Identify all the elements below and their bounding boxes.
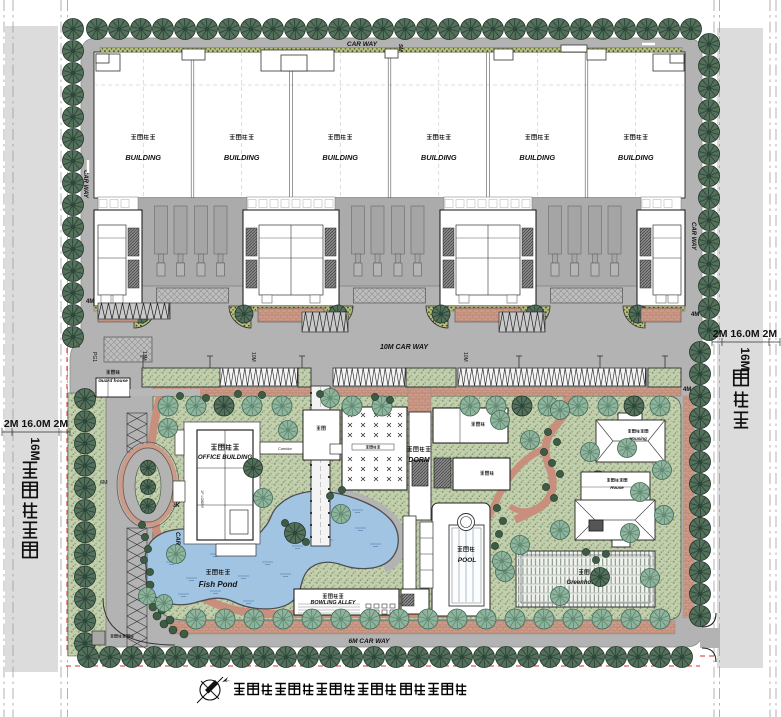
svg-text:6M CAR WAY: 6M CAR WAY: [348, 638, 390, 645]
svg-text:CAR WAY: CAR WAY: [347, 41, 378, 48]
svg-text:Corridor: Corridor: [278, 447, 292, 451]
svg-text:BUILDING: BUILDING: [224, 153, 260, 162]
svg-text:2M 16.0M 2M: 2M 16.0M 2M: [713, 328, 777, 340]
svg-text:1F LOBBY: 1F LOBBY: [200, 490, 204, 509]
svg-text:PG1: PG1: [91, 352, 97, 362]
svg-text:4M: 4M: [691, 312, 699, 318]
svg-text:BOWLING ALLEY: BOWLING ALLEY: [310, 600, 355, 606]
svg-text:DORM: DORM: [408, 457, 430, 464]
svg-text:CAR WAY: CAR WAY: [690, 222, 696, 251]
svg-text:5M: 5M: [397, 44, 403, 52]
svg-text:BUILDING: BUILDING: [519, 153, 555, 162]
svg-text:BUILDING: BUILDING: [421, 153, 457, 162]
svg-text:Fish Pond: Fish Pond: [199, 580, 239, 589]
svg-text:OFFICE BUILDING: OFFICE BUILDING: [198, 454, 252, 461]
svg-text:10M CAR WAY: 10M CAR WAY: [380, 344, 429, 351]
svg-text:10M: 10M: [250, 352, 256, 362]
svg-text:POOL: POOL: [458, 557, 476, 564]
svg-text:House: House: [610, 485, 624, 490]
svg-text:6M: 6M: [100, 480, 108, 486]
svg-text:16M: 16M: [738, 347, 752, 370]
svg-text:4M: 4M: [86, 299, 94, 305]
svg-text:Guard house: Guard house: [98, 378, 128, 384]
svg-text:BUILDING: BUILDING: [618, 153, 654, 162]
svg-text:16M: 16M: [28, 437, 42, 460]
svg-text:BUILDING: BUILDING: [322, 153, 358, 162]
svg-text:BUILDING: BUILDING: [125, 153, 161, 162]
svg-text:10M: 10M: [462, 352, 468, 362]
